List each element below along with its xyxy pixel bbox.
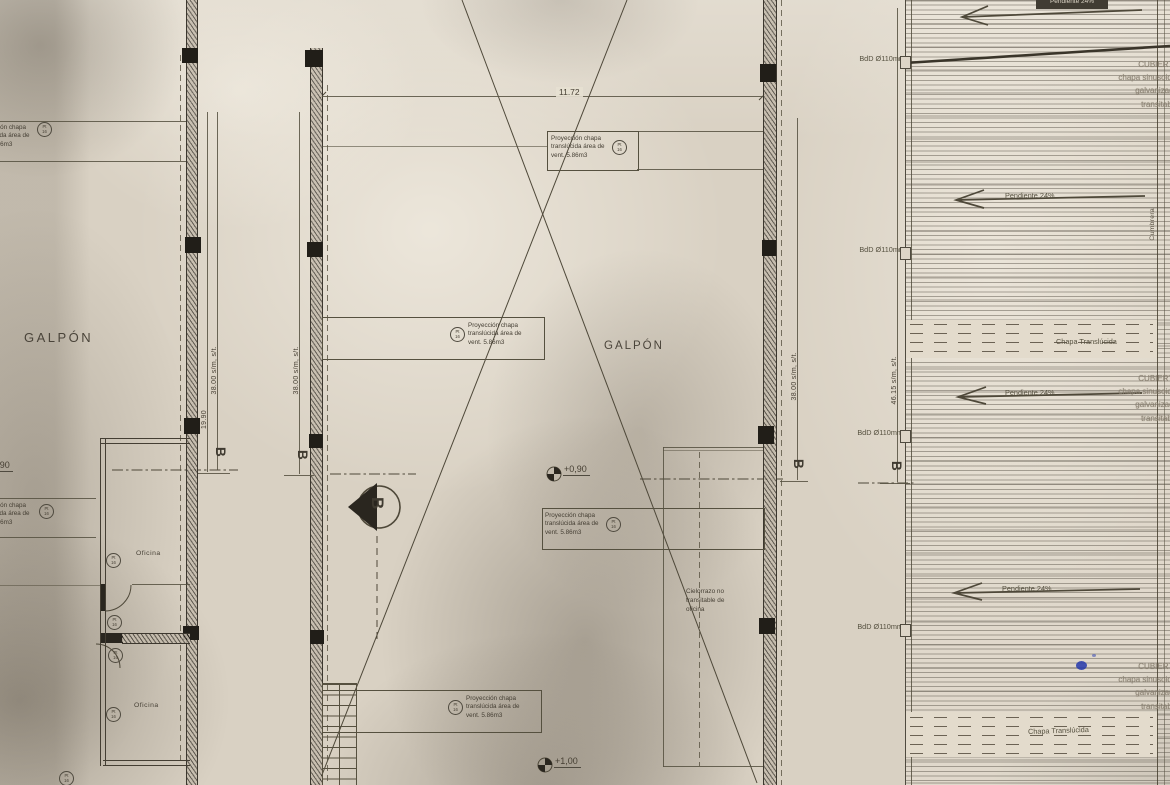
vent-note-top: Proyección chapa translúcida área de ven… (551, 135, 627, 160)
vent-note-clipped-top: Proyección chapa translúcida área de ven… (0, 124, 34, 149)
level-benchmark-main (547, 467, 561, 481)
vent-marker-icon: Pt16 (39, 504, 54, 519)
level-benchmark-bottom (538, 758, 552, 772)
dashed-line-mid-wall (327, 85, 328, 785)
drain-notch (900, 56, 911, 69)
oficina-label-2: Oficina (134, 701, 159, 711)
vent-marker-icon: Pt16 (37, 122, 52, 137)
vent-note-clipped-mid: Proyección chapa translúcida área de ven… (0, 502, 34, 527)
vent-note-mid: Pt16 Proyección chapa translúcida área d… (450, 322, 526, 347)
section-bracket (284, 475, 314, 476)
vent-marker-icon: Pt16 (448, 700, 463, 715)
room-tag-icon: Pt16 (106, 553, 121, 568)
section-letter: B (212, 447, 228, 463)
vent-band-top-ext2 (637, 169, 763, 170)
vent-marker-icon: Pt16 (612, 140, 627, 155)
room-tag-icon: Pt16 (106, 707, 121, 722)
drain-notch (900, 624, 911, 637)
bdd-label: BdD Ø110mm (843, 245, 905, 254)
ceiling-box-top2 (663, 450, 763, 451)
left-band-top-line (0, 121, 186, 122)
cubierta-note: CUBIERTAchapa sinusoidal galvanizadatran… (1048, 372, 1170, 425)
section-bracket (880, 483, 910, 484)
drain-notch (900, 247, 911, 260)
projection-diagonal-2 (318, 0, 627, 785)
blueprint-photo: 11.72 Proyección chapa translúcida área … (0, 0, 1170, 785)
column (184, 418, 200, 434)
bdd-label: BdD Ø110mm (841, 428, 903, 437)
pendiente-label: Pendiente 24% (1005, 191, 1055, 200)
oficina-partition-2 (122, 633, 190, 644)
galpon-label-left: GALPÓN (24, 330, 93, 345)
wall-left (186, 0, 198, 785)
dashed-line-right-wall (781, 0, 782, 785)
cubierta-note: CUBIERTAchapa sinusoidal galvanizadatran… (1048, 58, 1170, 111)
ink-dot (1076, 661, 1087, 670)
oficina-wall-bottom (103, 760, 190, 766)
vent-marker-icon: Pt16 (450, 327, 465, 342)
dim-38-label: 38.00 s/m, s/t. (293, 346, 300, 394)
column (307, 242, 323, 257)
section-letter: B (294, 450, 310, 466)
ceiling-box-bottom (663, 766, 763, 767)
section-letter: B (790, 459, 806, 475)
partition-leader-line (0, 585, 100, 586)
dim-38-label: 38.00 s/m, s/t. (791, 352, 798, 400)
oficina-label-1: Oficina (136, 549, 161, 559)
section-letter: B (888, 461, 904, 477)
oficina-wall-left (100, 438, 106, 766)
column (759, 618, 775, 634)
galpon-label-center: GALPÓN (604, 340, 664, 352)
level-mark-left-clipped: +0,90 (0, 460, 13, 472)
section-bracket (198, 473, 230, 474)
oficina-partition-1 (132, 584, 190, 585)
column (762, 240, 776, 256)
door-arc-1 (105, 585, 131, 611)
left-band2-top-line (0, 498, 96, 499)
column (760, 64, 776, 82)
room-tag-icon: Pt16 (59, 771, 74, 785)
bdd-label: BdD Ø110mm (841, 622, 903, 631)
projection-diagonal-1 (462, 0, 757, 783)
bdd-label: BdD Ø110mm (843, 54, 905, 63)
dim-38-label: 38.00 s/m, s/t. (211, 346, 218, 394)
column (305, 50, 323, 67)
left-band2-bottom-line (0, 537, 96, 538)
column (309, 434, 323, 448)
pendiente-label: Pendiente 24% (1002, 584, 1052, 593)
dim-line (797, 118, 798, 480)
column (310, 630, 324, 644)
level-mark-main: +0,90 (563, 464, 590, 476)
vent-note-bottom: Pt16 Proyección chapa translúcida área d… (448, 695, 524, 720)
column (182, 48, 198, 63)
pendiente-label-top-clipped: Pendiente 24% (1036, 0, 1108, 9)
dim-line (299, 112, 300, 474)
dim-1990-label: 19.90 (201, 410, 208, 429)
column (758, 426, 774, 444)
column (185, 237, 201, 253)
dim-4615-label: 46.15 s/m, s/t. (891, 356, 898, 404)
ceiling-box-top1 (663, 447, 763, 448)
cubierta-note: CUBIERTAchapa sinusoidal galvanizadatran… (1048, 660, 1170, 713)
room-tag-icon: Pt16 (107, 615, 122, 630)
stairs-grid (322, 683, 357, 785)
linework-overlay (0, 0, 1170, 785)
chapa-translucida-label: Chapa Translúcida (1056, 337, 1117, 346)
cielorrazo-note: Cielorrazo no transitable de oficina (686, 588, 744, 615)
section-letter-marker: B (371, 497, 387, 513)
dim-line-top (322, 96, 763, 97)
cumbrera-label: Cumbrera (1149, 208, 1156, 241)
dim-line (217, 112, 218, 470)
vent-band-top-ext1 (637, 131, 763, 132)
room-tag-icon: Pt16 (108, 648, 123, 663)
level-mark-bottom: +1,00 (554, 756, 581, 768)
vent-marker-icon: Pt16 (606, 517, 621, 532)
dim-top-label: 11.72 (556, 87, 583, 97)
oficina-wall-top (100, 438, 190, 444)
vent-note-low: Proyección chapa translúcida área de ven… (545, 512, 621, 537)
drain-notch (900, 430, 911, 443)
ceiling-box-left (663, 447, 664, 767)
ink-speck (1092, 654, 1096, 657)
section-bracket (780, 481, 808, 482)
wall-right (763, 0, 777, 785)
projection-line (322, 146, 547, 147)
wall-middle (310, 48, 323, 785)
left-band-bottom-line (0, 161, 186, 162)
